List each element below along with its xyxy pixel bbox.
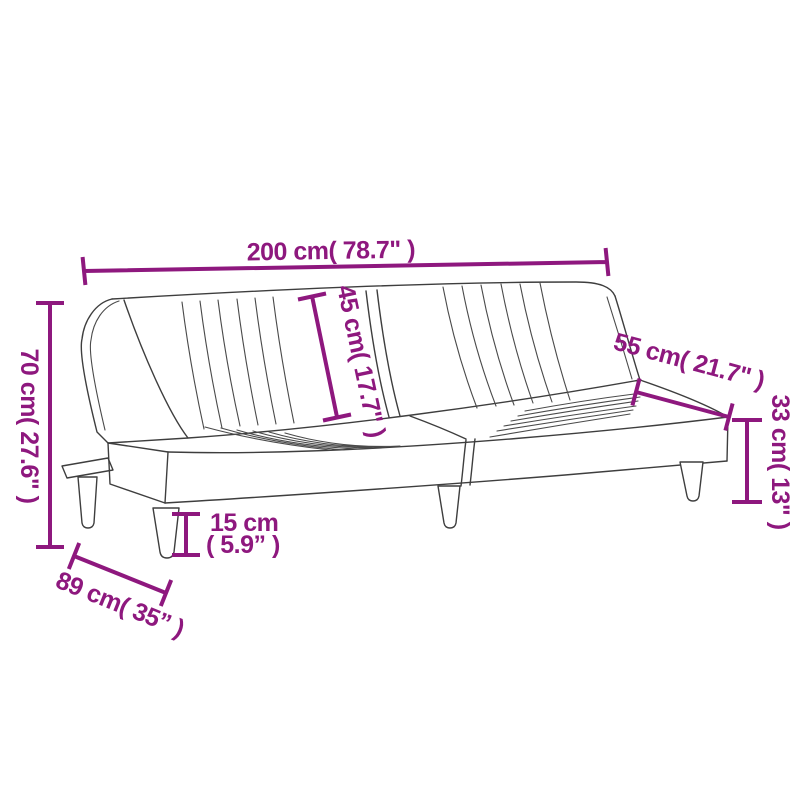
- backrest-side-seam: [90, 301, 119, 430]
- dimension-overall-height: 70 cm( 27.6" ): [15, 303, 64, 547]
- sofa-leg-middle: [438, 486, 460, 528]
- seat-front-left-edge: [165, 452, 168, 503]
- dimension-seat-height: 33 cm( 13" ): [732, 394, 794, 529]
- diagram-canvas: 200 cm( 78.7" ) 45 cm( 17.7" ) 55 cm( 21…: [0, 0, 800, 800]
- sofa-sketch: [62, 282, 728, 558]
- sofa-leg-front-right: [680, 462, 703, 501]
- seat-left-face: [108, 443, 168, 503]
- dimension-overall-height-label: 70 cm( 27.6" ): [15, 349, 43, 504]
- dimension-seat-height-line: [732, 420, 762, 502]
- sofa-legs: [78, 462, 703, 558]
- dimension-width-label: 200 cm( 78.7" ): [246, 236, 415, 267]
- dimension-annotations: 200 cm( 78.7" ) 45 cm( 17.7" ) 55 cm( 21…: [15, 236, 794, 644]
- backrest-left-edge: [124, 300, 188, 438]
- dimension-leg-height: 15 cm ( 5.9” ): [172, 509, 280, 559]
- dimension-depth-label: 89 cm( 35” ): [52, 566, 189, 643]
- dimension-seat-depth: 55 cm( 21.7" ): [611, 328, 768, 431]
- backrest-top-edge: [112, 282, 615, 299]
- backrest-pleats-right: [443, 283, 570, 408]
- dimension-width: 200 cm( 78.7" ): [83, 236, 609, 285]
- dimension-leg-height-label-line2: ( 5.9” ): [206, 531, 280, 559]
- sofa-leg-back-left: [78, 477, 97, 528]
- backrest-pleats-left: [182, 297, 294, 429]
- seat-cushion-seam: [410, 416, 475, 486]
- product-dimension-diagram: 200 cm( 78.7" ) 45 cm( 17.7" ) 55 cm( 21…: [0, 0, 800, 800]
- seat-front-top-edge: [168, 417, 728, 453]
- dimension-seat-height-label: 33 cm( 13" ): [766, 394, 794, 529]
- seat-pleats-right-cushion: [490, 393, 642, 437]
- sofa-wing-panel: [62, 458, 113, 478]
